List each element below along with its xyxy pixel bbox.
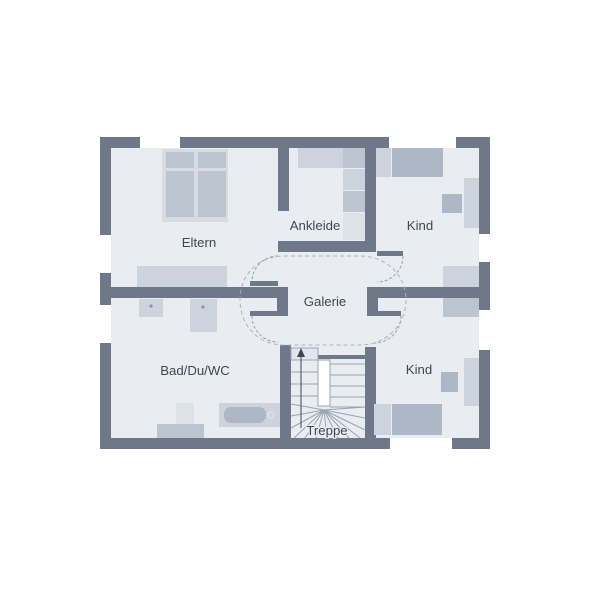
wardrobe-cell-3-shape <box>343 191 365 212</box>
room-label-galerie: Galerie <box>304 294 347 309</box>
bath-tub-inner-shape <box>224 407 266 423</box>
child1-chair-shape <box>442 194 462 213</box>
parents-dresser-shape <box>137 266 227 287</box>
wall <box>367 287 479 298</box>
door-kind-top-leaf <box>377 251 403 256</box>
wall <box>479 137 490 449</box>
wall <box>277 287 288 316</box>
wall <box>278 148 289 211</box>
window-opening <box>100 305 111 343</box>
wall <box>278 241 368 252</box>
parents-bed-pillow-r-shape <box>198 152 226 168</box>
window-opening <box>389 137 456 148</box>
room-label-kind_top: Kind <box>407 218 433 233</box>
room-label-eltern: Eltern <box>182 235 216 250</box>
room-label-kind_bottom: Kind <box>406 362 432 377</box>
wardrobe-cell-4-shape <box>343 213 365 240</box>
child2-bed-pillow-shape <box>374 404 391 435</box>
wall <box>280 345 291 438</box>
floor-plan-page: ElternAnkleideKindGalerieBad/Du/WCKindTr… <box>0 0 600 600</box>
wall <box>100 137 111 449</box>
window-opening <box>390 438 452 449</box>
parents-bed-mattress-l-shape <box>166 171 194 217</box>
child2-desk-shape <box>464 358 479 406</box>
door-kind-bottom-leaf <box>374 311 401 316</box>
stair-well <box>318 360 330 406</box>
parents-bed-mattress-r-shape <box>198 171 226 217</box>
child2-bed-mattress-shape <box>392 404 442 435</box>
window-opening <box>479 234 490 262</box>
child1-bed-mattress-shape <box>392 148 443 177</box>
door-bad-leaf <box>250 311 278 316</box>
child2-chair-shape <box>441 372 458 392</box>
wardrobe-cell-2-shape <box>343 169 365 190</box>
child1-desk-shape <box>464 178 479 228</box>
wardrobe-cell-1-shape <box>343 148 365 168</box>
bath-basin-shape <box>139 299 163 317</box>
parents-bed-pillow-l-shape <box>166 152 194 168</box>
window-opening <box>140 137 180 148</box>
bath-wc-shape <box>176 403 194 424</box>
child2-dresser-shape <box>443 298 479 317</box>
child1-bed-pillow-shape <box>376 148 391 177</box>
child1-dresser-shape <box>443 266 479 287</box>
wardrobe-top-shape <box>298 148 343 168</box>
room-label-ankleide: Ankleide <box>290 218 341 233</box>
wall <box>318 355 365 359</box>
room-label-bad: Bad/Du/WC <box>160 363 230 378</box>
stair-landing <box>291 348 318 360</box>
bath-wc-block-shape <box>157 424 204 438</box>
wall <box>111 287 283 298</box>
room-label-treppe: Treppe <box>306 423 347 438</box>
floor-plan-canvas: ElternAnkleideKindGalerieBad/Du/WCKindTr… <box>0 0 600 600</box>
door-eltern-leaf <box>250 281 278 286</box>
window-opening <box>100 235 111 273</box>
window-opening <box>479 310 490 350</box>
bath-shower-shape <box>190 299 217 332</box>
shower-faucet <box>201 305 204 308</box>
basin-faucet <box>149 304 152 307</box>
wall <box>365 148 376 252</box>
